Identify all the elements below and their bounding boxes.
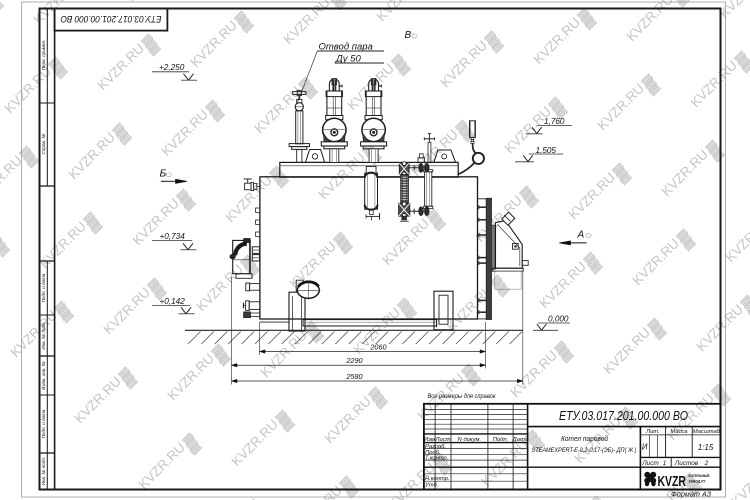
svg-text:Масса: Масса	[670, 429, 688, 435]
svg-text:1:15: 1:15	[698, 443, 714, 452]
svg-text:Б: Б	[160, 168, 167, 180]
svg-text:Утб.: Утб.	[424, 483, 438, 489]
svg-text:Лист: Лист	[435, 437, 451, 443]
svg-text:Лит.: Лит.	[645, 429, 660, 435]
svg-text:Взам. инв. №: Взам. инв. №	[41, 361, 46, 389]
svg-text:ЕТУ.03.017.201.00.000 ВО: ЕТУ.03.017.201.00.000 ВО	[559, 408, 688, 423]
svg-text:Инв. № дубл.: Инв. № дубл.	[41, 321, 46, 349]
svg-text:1,505: 1,505	[536, 146, 557, 155]
svg-text:+0,734: +0,734	[160, 232, 186, 241]
svg-text:+0,142: +0,142	[160, 297, 186, 306]
svg-text:0,000: 0,000	[548, 315, 569, 324]
svg-text:2580: 2580	[345, 372, 362, 381]
svg-text:2060: 2060	[369, 342, 386, 351]
svg-text:STEAMEXPERT-Е-0,2-0,17-(ЭБ)- Д: STEAMEXPERT-Е-0,2-0,17-(ЭБ)- ДП( Ж )	[532, 447, 637, 454]
svg-text:Изм: Изм	[424, 437, 435, 443]
svg-text:ЗАВОД.РУ: ЗАВОД.РУ	[689, 478, 706, 483]
svg-text:Листов: Листов	[674, 460, 699, 467]
svg-text:Справ. №: Справ. №	[41, 134, 46, 155]
svg-text:Масштаб: Масштаб	[693, 429, 721, 435]
svg-text:Лист: Лист	[641, 460, 659, 467]
svg-text:Подп. и дата: Подп. и дата	[41, 409, 46, 438]
svg-text:ЕТУ.03.017.201.00.000 ВО: ЕТУ.03.017.201.00.000 ВО	[60, 14, 162, 25]
svg-text:+2,250: +2,250	[159, 63, 185, 72]
svg-text:Н.контр.: Н.контр.	[425, 476, 450, 482]
svg-text:1,760: 1,760	[544, 117, 565, 126]
svg-text:Инв. № подл.: Инв. № подл.	[41, 457, 46, 486]
svg-text:Все размеры для справок: Все размеры для справок	[428, 392, 497, 400]
svg-text:Перв. примен.: Перв. примен.	[41, 40, 46, 71]
svg-text:В: В	[405, 30, 412, 41]
svg-text:А: А	[577, 230, 585, 241]
svg-text:И: И	[642, 443, 648, 452]
svg-text:Формат А3: Формат А3	[671, 492, 711, 499]
svg-text:Подп.: Подп.	[493, 437, 508, 443]
svg-text:1: 1	[663, 460, 667, 467]
svg-text:KVZR: KVZR	[658, 473, 687, 490]
svg-text:КОТЕЛЬНЫЙ: КОТЕЛЬНЫЙ	[689, 473, 710, 478]
svg-text:N докум.: N докум.	[458, 437, 481, 443]
svg-text:2: 2	[704, 460, 709, 467]
svg-text:Дата: Дата	[512, 437, 529, 443]
svg-text:Т.контр.: Т.контр.	[425, 456, 448, 462]
svg-text:2290: 2290	[345, 356, 362, 365]
svg-text:Котел паровой: Котел паровой	[561, 434, 608, 443]
svg-text:Подп. и дата: Подп. и дата	[41, 273, 46, 302]
